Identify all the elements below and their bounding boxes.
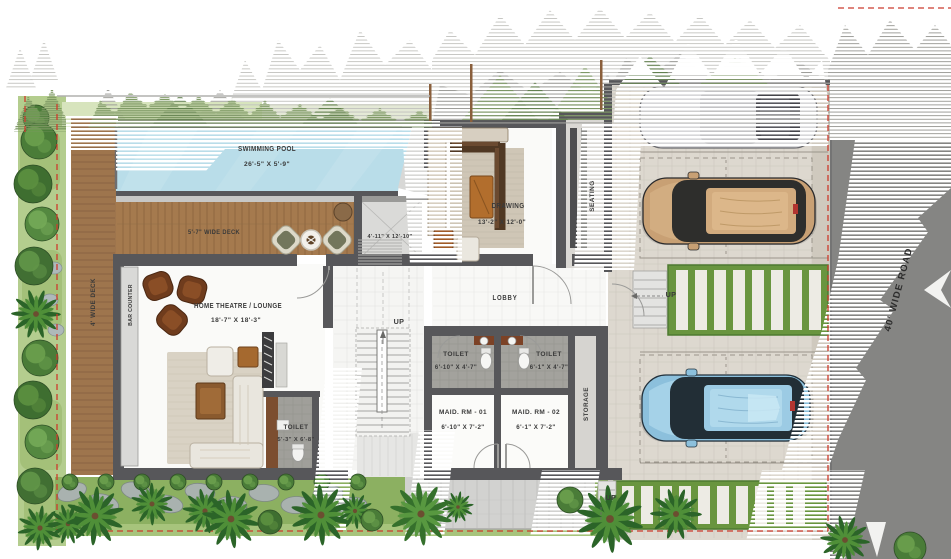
svg-text:UP: UP [666,290,677,299]
svg-text:MAID. RM - 02: MAID. RM - 02 [512,409,560,416]
svg-text:STORAGE: STORAGE [583,387,590,421]
svg-text:6'-1" X 7'-2": 6'-1" X 7'-2" [516,424,555,431]
svg-text:13'-2" X 12'-0": 13'-2" X 12'-0" [478,219,526,226]
svg-text:LOBBY: LOBBY [493,293,518,302]
svg-text:MAID. RM - 01: MAID. RM - 01 [439,409,487,416]
svg-text:TOILET: TOILET [283,424,308,431]
svg-text:UP: UP [606,493,617,502]
svg-text:18'-7" X 18'-3": 18'-7" X 18'-3" [211,317,261,324]
svg-text:4'-11" X 12'-10": 4'-11" X 12'-10" [368,234,413,240]
svg-text:6'-10" X 4'-7": 6'-10" X 4'-7" [435,365,477,371]
svg-text:SWIMMING POOL: SWIMMING POOL [238,146,296,153]
svg-text:SEATING: SEATING [589,180,596,211]
svg-text:TOILET: TOILET [536,351,562,358]
svg-text:6'-1" X 4'-7": 6'-1" X 4'-7" [530,365,568,371]
svg-text:26'-5" X 5'-9": 26'-5" X 5'-9" [244,161,290,168]
svg-text:DRAWING: DRAWING [492,201,525,210]
svg-text:4' WIDE DECK: 4' WIDE DECK [90,278,97,326]
svg-text:HOME THEATRE / LOUNGE: HOME THEATRE / LOUNGE [194,303,282,310]
svg-text:5'-3" X 6'-8": 5'-3" X 6'-8" [277,437,314,443]
svg-text:5'-7" WIDE DECK: 5'-7" WIDE DECK [188,229,240,236]
svg-text:UP: UP [394,317,405,326]
svg-text:TOILET: TOILET [443,351,469,358]
svg-text:BAR COUNTER: BAR COUNTER [128,284,134,326]
svg-text:6'-10" X 7'-2": 6'-10" X 7'-2" [441,424,484,431]
